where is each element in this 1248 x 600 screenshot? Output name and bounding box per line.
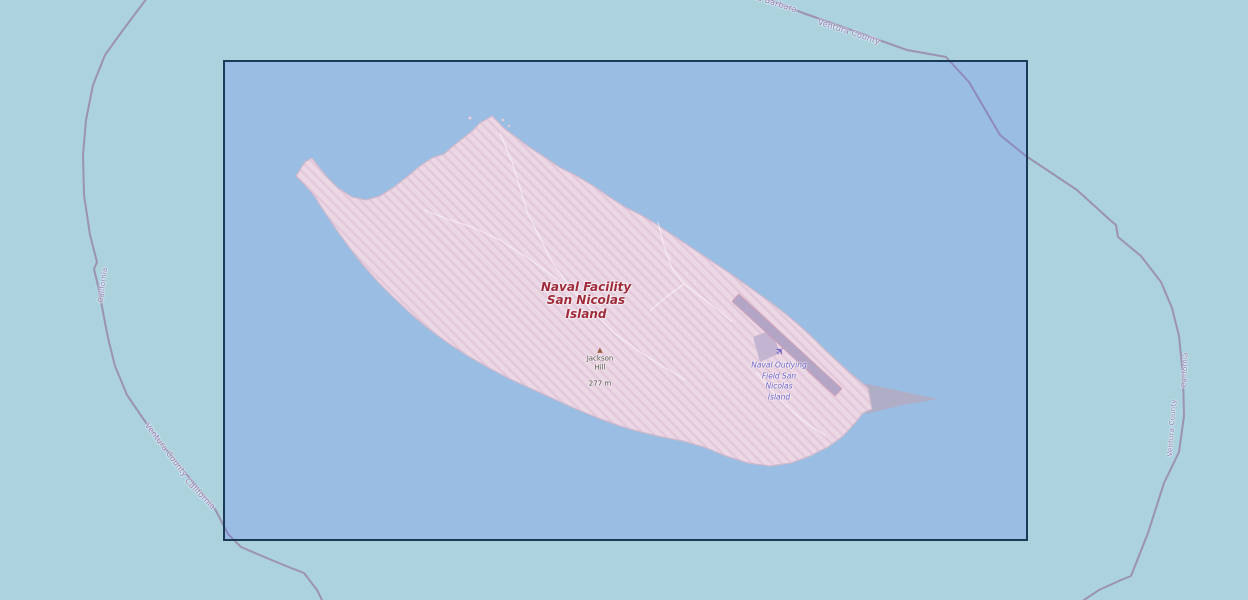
islet [469,117,472,120]
peak-elevation: 277 m [589,379,611,387]
map-canvas[interactable]: Naval Facility San Nicolas Island ▲ Jack… [0,0,1248,600]
islet [502,119,505,122]
islet [508,125,510,127]
boundary-label-east-state: California [1180,352,1189,388]
military-area-label: Naval Facility San Nicolas Island [541,281,631,321]
peak-name: Jackson Hill [587,355,614,371]
airfield-label: Naval Outlying Field San Nicolas Island [751,361,806,404]
peak-label: Jackson Hill 277 m [587,346,614,387]
